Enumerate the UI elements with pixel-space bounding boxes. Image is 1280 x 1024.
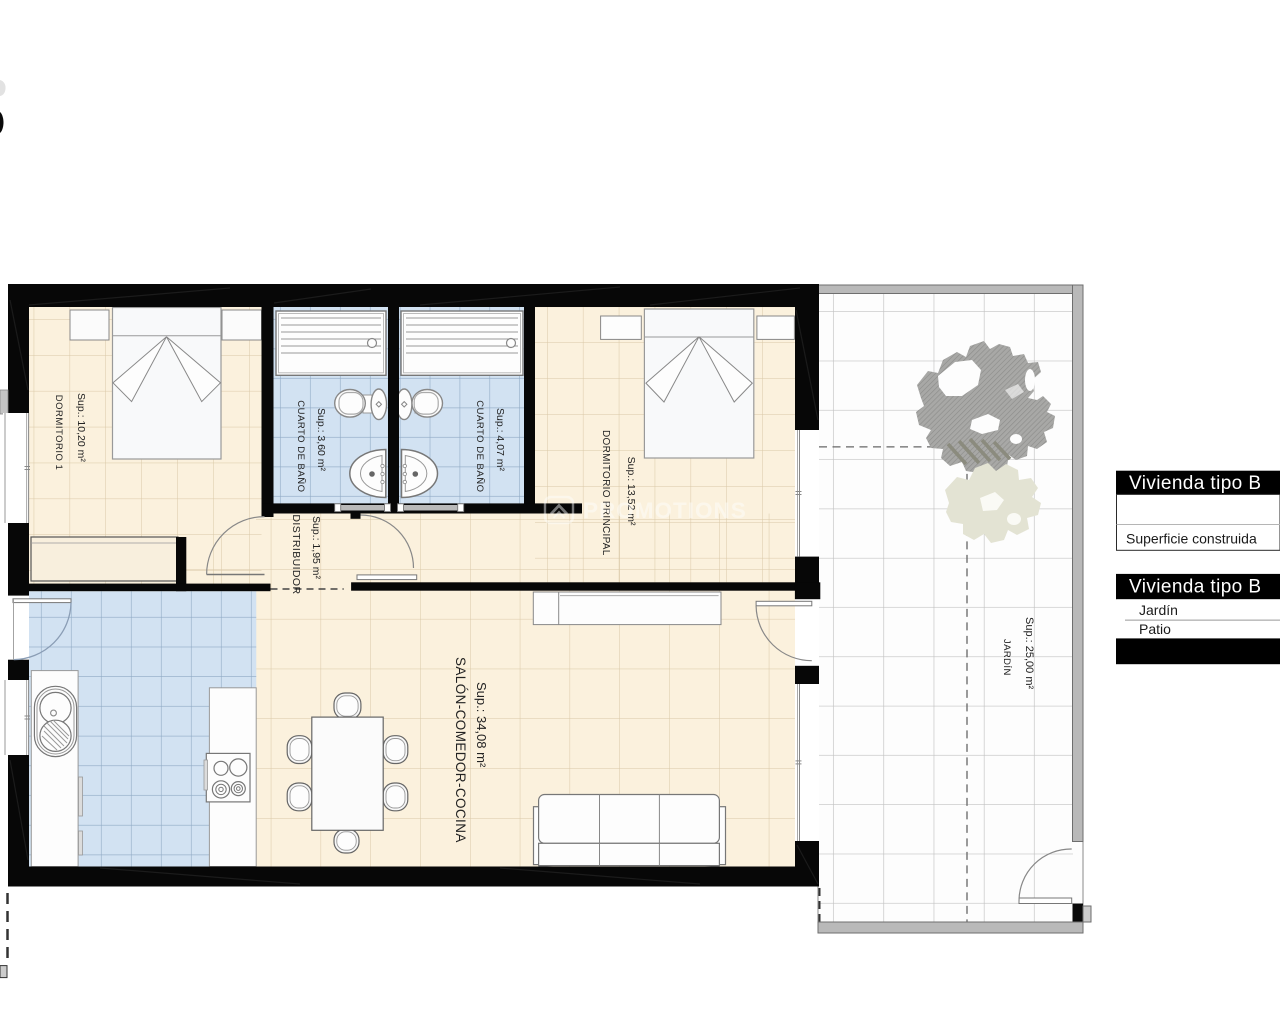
svg-text:DORMITORIO PRINCIPAL: DORMITORIO PRINCIPAL bbox=[600, 430, 611, 556]
svg-text:Sup.: 10,20 m²: Sup.: 10,20 m² bbox=[75, 393, 87, 462]
svg-text:SALÓN-COMEDOR-COCINA: SALÓN-COMEDOR-COCINA bbox=[453, 657, 468, 843]
svg-text:Sup.: 4,07 m²: Sup.: 4,07 m² bbox=[494, 408, 506, 472]
svg-text:DORMITORIO 1: DORMITORIO 1 bbox=[53, 395, 64, 471]
svg-text:PROMOTIONS: PROMOTIONS bbox=[583, 498, 747, 523]
svg-text:JARDÍN: JARDÍN bbox=[1001, 639, 1012, 676]
svg-text:DISTRIBUIDOR: DISTRIBUIDOR bbox=[290, 514, 302, 594]
svg-text:Sup.: 3,60 m²: Sup.: 3,60 m² bbox=[315, 408, 327, 472]
svg-text:Sup.: 1,95 m²: Sup.: 1,95 m² bbox=[310, 516, 322, 580]
svg-text:CUARTO DE BAÑO: CUARTO DE BAÑO bbox=[295, 400, 306, 492]
svg-text:Sup.: 25,00 m²: Sup.: 25,00 m² bbox=[1023, 617, 1035, 689]
svg-text:Vivienda tipo B: Vivienda tipo B bbox=[1129, 577, 1261, 598]
svg-text:CUARTO DE BAÑO: CUARTO DE BAÑO bbox=[474, 400, 485, 492]
svg-text:Patio: Patio bbox=[1139, 621, 1171, 637]
svg-text:Sup.: 34,08 m²: Sup.: 34,08 m² bbox=[474, 682, 489, 768]
svg-text:Vivienda tipo B: Vivienda tipo B bbox=[1129, 473, 1261, 494]
svg-text:Jardín: Jardín bbox=[1139, 602, 1178, 618]
svg-text:Superficie construida: Superficie construida bbox=[1126, 531, 1257, 547]
